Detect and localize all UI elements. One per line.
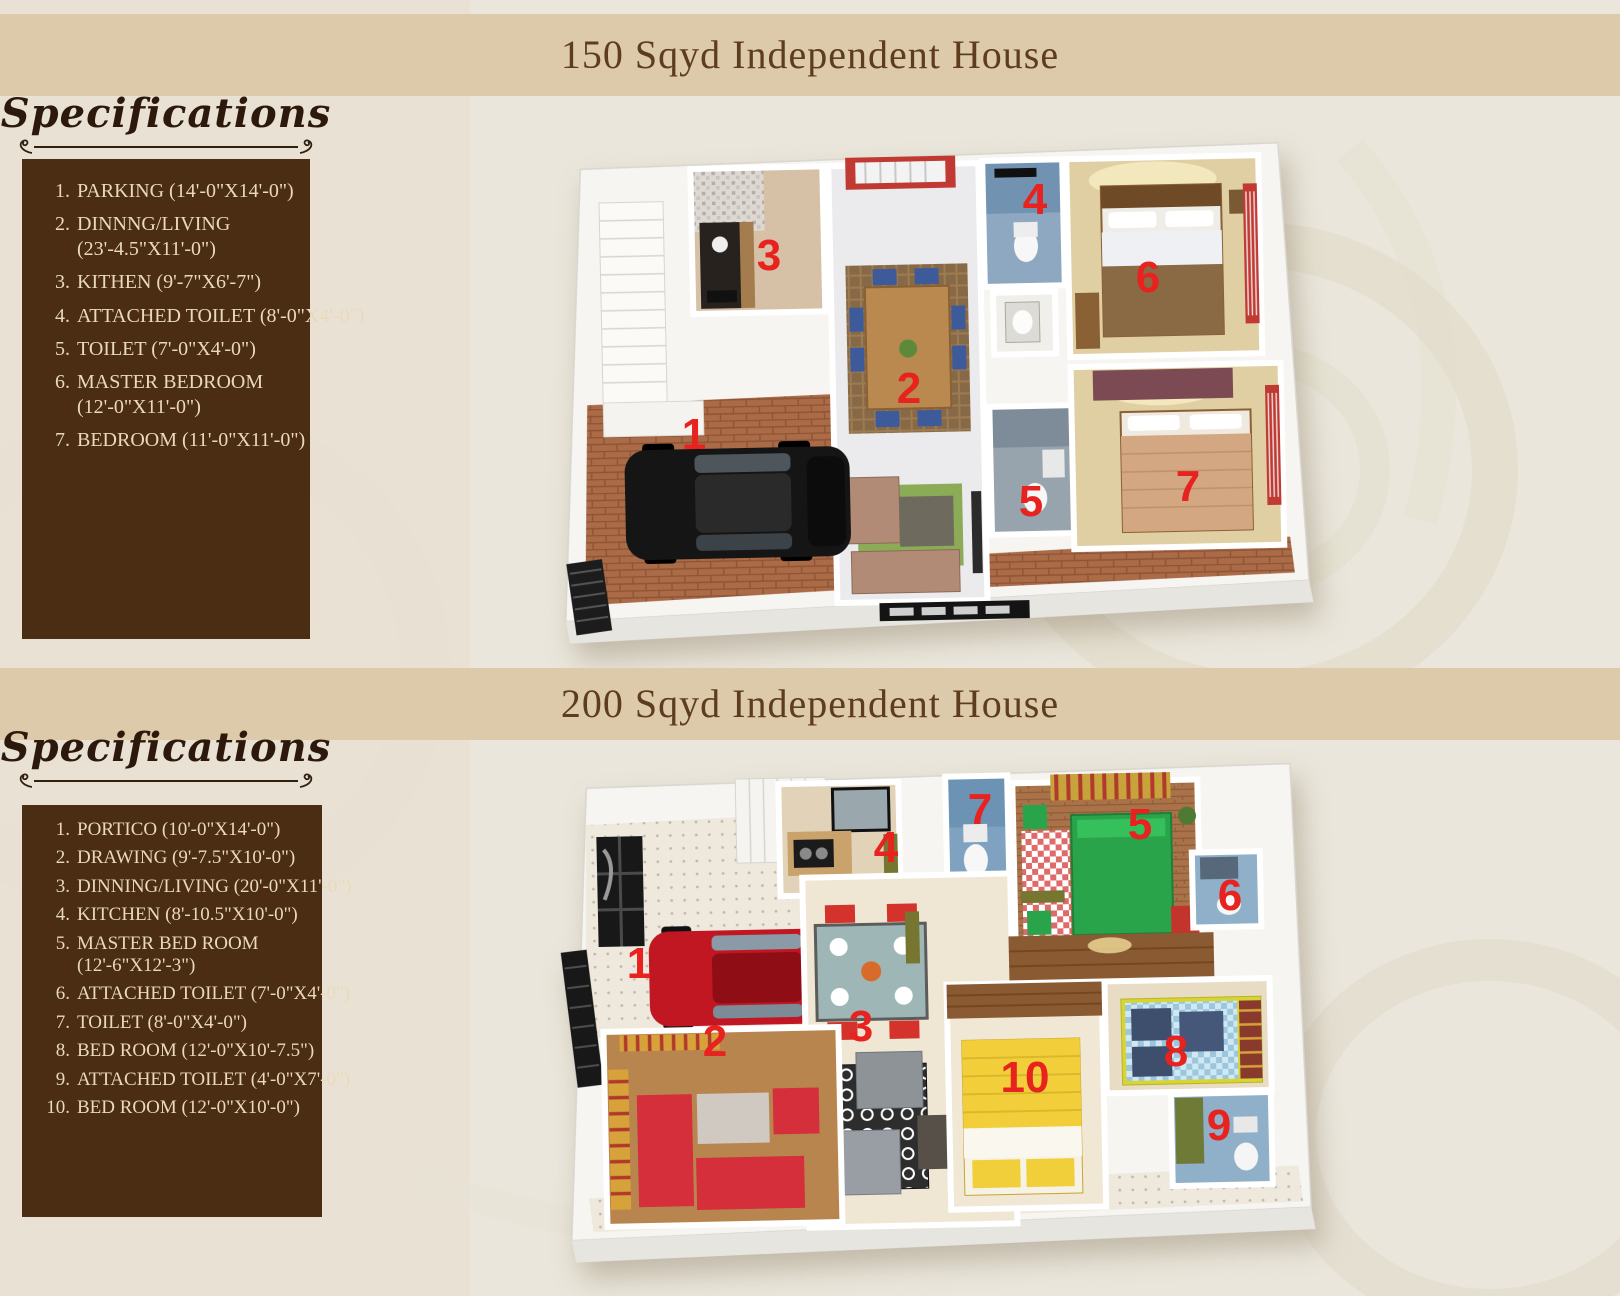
spec-item-number: 5.	[32, 337, 77, 361]
spec-item-text: ATTACHED TOILET (8'-0"X4'-0")	[77, 304, 364, 328]
spec-item: 7.TOILET (8'-0"X4'-0")	[32, 1012, 316, 1034]
pillow	[972, 1159, 1021, 1188]
pillow	[1026, 1158, 1075, 1187]
spec-item-number: 3.	[32, 876, 77, 898]
spec-item: 5.MASTER BED ROOM(12'-6"X12'-3")	[32, 933, 316, 978]
attached-toilet-room	[982, 159, 1065, 287]
spec-item: 10.BED ROOM (12'-0"X10'-0")	[32, 1097, 316, 1119]
wood-accent-wall	[946, 982, 1102, 1019]
spec-item: 3.DINNING/LIVING (20'-0"X11'-0")	[32, 876, 316, 898]
brochure-page: 150 Sqyd Independent House Specification…	[0, 0, 1620, 1296]
section2-specifications-heading: Specifications	[16, 724, 316, 789]
bedroom-10	[946, 982, 1106, 1210]
spec-item-text: DINNING/LIVING (20'-0"X11'-0")	[77, 876, 351, 898]
toilet-room	[989, 405, 1076, 535]
spec-item: 1.PARKING (14'-0"X14'-0")	[32, 179, 304, 203]
spec-item-text: ATTACHED TOILET (7'-0"X4'-0")	[77, 983, 350, 1005]
spec-item-text: TOILET (8'-0"X4'-0")	[77, 1012, 247, 1034]
green-stool	[1023, 805, 1047, 829]
rug	[697, 1093, 770, 1144]
pillow	[1132, 1046, 1173, 1077]
spec-item-text: DINNNG/LIVING(23'-4.5"X11'-0")	[77, 212, 230, 261]
specifications-script-text: Specifications	[1, 724, 331, 771]
wardrobe	[1075, 293, 1100, 349]
section1-spec-box: 1.PARKING (14'-0"X14'-0")2.DINNNG/LIVING…	[22, 159, 310, 639]
spec-item-text: BED ROOM (12'-0"X10'-7.5")	[77, 1040, 314, 1062]
red-armchair	[773, 1087, 820, 1134]
spec-item: 6.ATTACHED TOILET (7'-0"X4'-0")	[32, 983, 316, 1005]
spec-item-number: 1.	[32, 179, 77, 203]
spec-item: 1.PORTICO (10'-0"X14'-0")	[32, 819, 316, 841]
spec-item-text: MASTER BEDROOM(12'-0"X11'-0")	[77, 370, 263, 419]
spec-item-number: 7.	[32, 1012, 77, 1034]
spec-item: 9.ATTACHED TOILET (4'-0"X7'-0")	[32, 1069, 316, 1091]
yellow-blanket	[962, 1038, 1082, 1128]
front-vent-window	[879, 600, 1029, 621]
spec-item-text: TOILET (7'-0"X4'-0")	[77, 337, 256, 361]
floor-plan-150-render	[540, 128, 1331, 654]
spec-item-number: 3.	[32, 270, 77, 294]
spec-item-number: 5.	[32, 933, 77, 978]
attached-toilet-room	[1192, 851, 1262, 927]
bedroom-8	[1104, 978, 1271, 1093]
grey-armchair	[856, 1051, 923, 1108]
ornament-divider	[16, 773, 316, 789]
spec-item-text: BED ROOM (12'-0"X10'-0")	[77, 1097, 300, 1119]
stove	[793, 839, 834, 868]
master-bedroom	[1012, 771, 1201, 948]
kitchen-window	[832, 788, 889, 831]
spec-item-number: 4.	[32, 304, 77, 328]
spec-item-text: PORTICO (10'-0"X14'-0")	[77, 819, 280, 841]
section1-specifications-heading: Specifications	[16, 90, 316, 155]
spec-item-number: 9.	[32, 1069, 77, 1091]
section2-spec-box: 1.PORTICO (10'-0"X14'-0")2.DRAWING (9'-7…	[22, 805, 322, 1217]
spec-item-text: BEDROOM (11'-0"X11'-0")	[77, 428, 305, 452]
pillow	[1179, 1011, 1224, 1052]
spec-item-number: 6.	[32, 370, 77, 419]
tv-unit	[971, 491, 983, 573]
flourish-left-icon	[16, 773, 34, 789]
floor-plan-200-render	[550, 755, 1320, 1263]
red-sofa	[637, 1094, 694, 1207]
specifications-script-text: Specifications	[1, 90, 331, 137]
spec-item-text: ATTACHED TOILET (4'-0"X7'-0")	[77, 1069, 350, 1091]
armchair	[845, 477, 900, 544]
wardrobe	[1093, 368, 1234, 401]
side-curtain	[608, 1069, 631, 1209]
spec-item-number: 8.	[32, 1040, 77, 1062]
corridor-wood-wall	[1008, 932, 1214, 981]
spec-item: 2.DRAWING (9'-7.5"X10'-0")	[32, 847, 316, 869]
spec-item-number: 2.	[32, 847, 77, 869]
spec-item-number: 1.	[32, 819, 77, 841]
entry-window-panel	[596, 836, 644, 947]
kitchen-room	[690, 166, 825, 314]
spec-item: 2.DINNNG/LIVING(23'-4.5"X11'-0")	[32, 212, 304, 261]
spec-item-number: 2.	[32, 212, 77, 261]
spec-item-text: PARKING (14'-0"X14'-0")	[77, 179, 294, 203]
spec-item: 7.BEDROOM (11'-0"X11'-0")	[32, 428, 304, 452]
sofa	[851, 550, 960, 594]
red-sofa	[696, 1156, 805, 1210]
flourish-right-icon	[298, 773, 316, 789]
section1-spec-list: 1.PARKING (14'-0"X14'-0")2.DINNNG/LIVING…	[22, 159, 310, 453]
spec-item: 6.MASTER BEDROOM(12'-0"X11'-0")	[32, 370, 304, 419]
spec-item: 4.ATTACHED TOILET (8'-0"X4'-0")	[32, 304, 304, 328]
washbasin-nook	[993, 291, 1056, 354]
dining-living-room	[828, 155, 987, 603]
pillow	[1131, 1008, 1172, 1041]
black-car	[624, 440, 851, 565]
spec-item: 3.KITHEN (9'-7"X6'-7")	[32, 270, 304, 294]
section1-title: 150 Sqyd Independent House	[0, 14, 1620, 96]
spec-item: 5.TOILET (7'-0"X4'-0")	[32, 337, 304, 361]
ornament-divider	[16, 139, 316, 155]
section2-spec-list: 1.PORTICO (10'-0"X14'-0")2.DRAWING (9'-7…	[22, 805, 322, 1119]
flourish-right-icon	[298, 139, 316, 155]
spec-item-text: MASTER BED ROOM(12'-6"X12'-3")	[77, 933, 259, 978]
flourish-left-icon	[16, 139, 34, 155]
green-stool	[1027, 911, 1051, 935]
spec-item: 4.KITCHEN (8'-10.5"X10'-0")	[32, 904, 316, 926]
spec-item: 8.BED ROOM (12'-0"X10'-7.5")	[32, 1040, 316, 1062]
curtained-window	[619, 1034, 719, 1052]
drawing-room	[603, 1027, 842, 1227]
spec-item-text: KITCHEN (8'-10.5"X10'-0")	[77, 904, 298, 926]
spec-item-number: 6.	[32, 983, 77, 1005]
spec-item-number: 10.	[32, 1097, 77, 1119]
master-bedroom	[1066, 155, 1262, 357]
attached-toilet-9	[1171, 1092, 1273, 1186]
spec-item-number: 7.	[32, 428, 77, 452]
spec-item-text: KITHEN (9'-7"X6'-7")	[77, 270, 261, 294]
section1-title-band: 150 Sqyd Independent House	[0, 14, 1620, 96]
spec-item-text: DRAWING (9'-7.5"X10'-0")	[77, 847, 295, 869]
floor-plan-150sqyd: 1234567	[545, 136, 1325, 646]
coffee-table	[899, 496, 954, 547]
floor-plan-200sqyd: 12345678910	[555, 763, 1315, 1255]
spec-item-number: 4.	[32, 904, 77, 926]
bedroom	[1071, 363, 1285, 549]
